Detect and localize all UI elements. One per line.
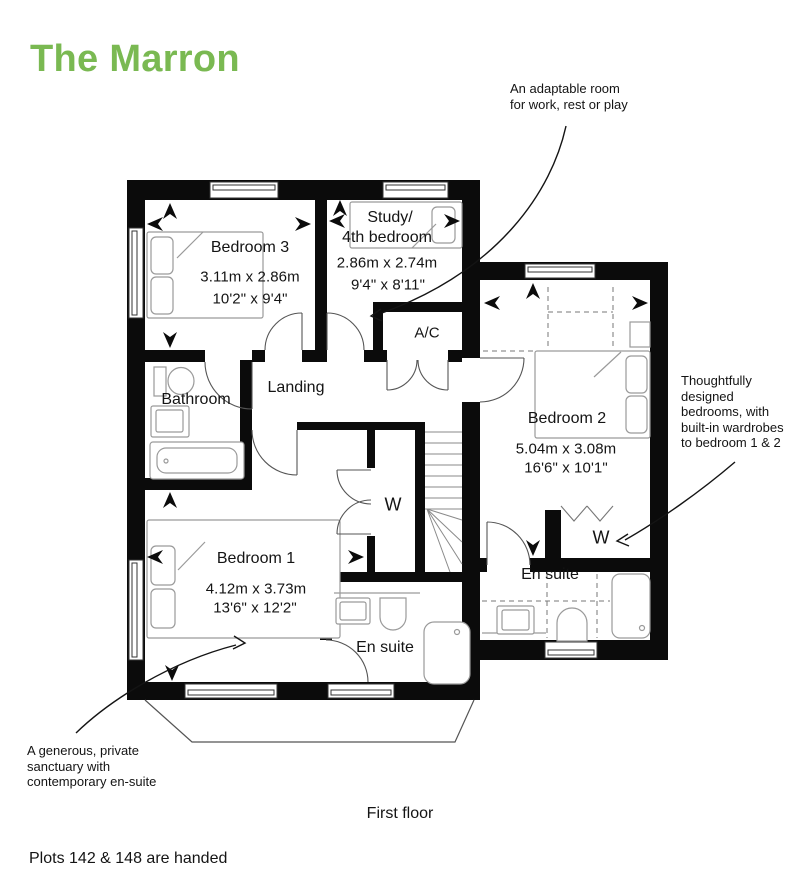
staircase: [425, 432, 462, 572]
wardrobe1-label: W: [385, 495, 402, 516]
bedroom1-label: Bedroom 1: [217, 550, 295, 568]
annotation-wardrobes-line2: designed: [681, 389, 784, 405]
ensuite1-label: En suite: [356, 639, 414, 657]
annotation-study-line2: for work, rest or play: [510, 97, 628, 113]
wardrobe2-label: W: [593, 528, 610, 549]
ensuite1-toilet: [380, 598, 406, 630]
annotation-study-line1: An adaptable room: [510, 81, 628, 97]
study-metric: 2.86m x 2.74m: [337, 255, 438, 272]
annotation-master-line1: A generous, private: [27, 743, 156, 759]
landing-label: Landing: [268, 379, 325, 397]
study-label-line1: Study/: [367, 209, 412, 227]
annotation-wardrobes-line1: Thoughtfully: [681, 373, 784, 389]
plots-footnote: Plots 142 & 148 are handed: [29, 850, 227, 868]
bedroom2-metric: 5.04m x 3.08m: [516, 441, 617, 458]
bedroom3-metric: 3.11m x 2.86m: [200, 269, 299, 286]
bedroom1-imperial: 13'6" x 12'2": [213, 600, 297, 617]
annotation-wardrobes-line4: built-in wardrobes: [681, 420, 784, 436]
bedroom2-imperial: 16'6" x 10'1": [524, 460, 608, 477]
wardrobe2-bifold-doors: [561, 506, 613, 521]
bed2-nightstand: [630, 322, 650, 347]
ac-label: A/C: [414, 325, 439, 342]
annotation-wardrobes-line3: bedrooms, with: [681, 404, 784, 420]
annotation-master-line2: sanctuary with: [27, 759, 156, 775]
annotation-master: A generous, private sanctuary with conte…: [27, 743, 156, 790]
annotation-wardrobes: Thoughtfully designed bedrooms, with bui…: [681, 373, 784, 451]
ensuite1-shower: [424, 622, 470, 684]
annotation-master-line3: contemporary en-suite: [27, 774, 156, 790]
bed1-double-bed: [147, 520, 340, 638]
bathroom-label: Bathroom: [161, 391, 230, 409]
ensuite2-toilet: [557, 608, 587, 641]
bedroom3-label: Bedroom 3: [211, 239, 289, 257]
annotation-study: An adaptable room for work, rest or play: [510, 81, 628, 112]
study-label-line2: 4th bedroom: [342, 229, 432, 247]
bay-roof-outline: [145, 700, 474, 742]
study-imperial: 9'4" x 8'11": [351, 277, 425, 294]
floorplan-page: The Marron Bedroom 3 3.11m x 2.86m 10'2"…: [0, 0, 800, 896]
bedroom2-label: Bedroom 2: [528, 410, 606, 428]
bedroom1-metric: 4.12m x 3.73m: [206, 581, 307, 598]
floor-label: First floor: [367, 805, 434, 823]
bedroom3-imperial: 10'2" x 9'4": [212, 291, 287, 308]
wardrobe-annotation-arrow: [625, 462, 735, 540]
page-title: The Marron: [30, 38, 240, 81]
annotation-wardrobes-line5: to bedroom 1 & 2: [681, 435, 784, 451]
ensuite2-label: En suite: [521, 566, 579, 584]
